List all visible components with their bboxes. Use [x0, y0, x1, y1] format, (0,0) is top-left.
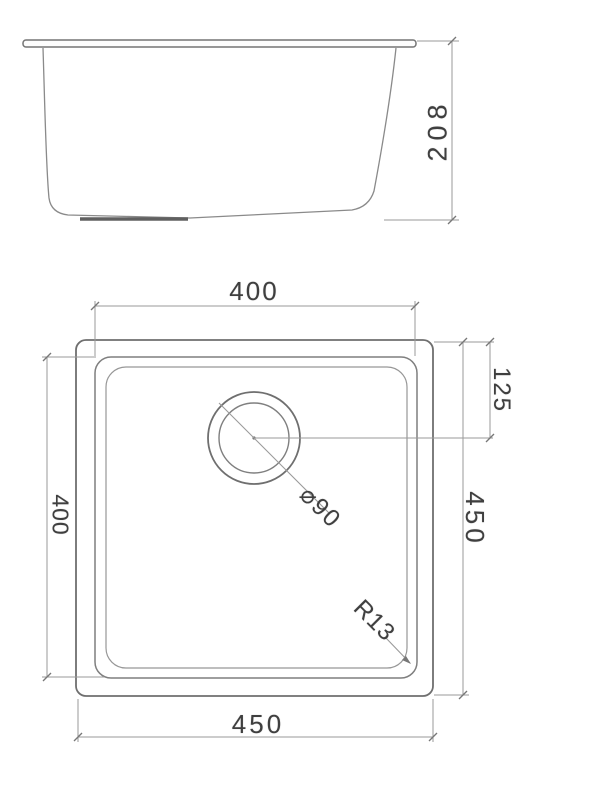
plan-view: [42, 301, 494, 742]
dim-drain-offset: [254, 338, 494, 442]
leader-arrowhead: [402, 656, 411, 664]
elevation-view: [23, 37, 459, 224]
sink-body-profile: [43, 48, 396, 218]
dim-label-inner-width: 400: [229, 278, 278, 304]
dim-label-drain-offset: 125: [489, 367, 513, 413]
dim-label-outer-width: 450: [232, 711, 284, 737]
technical-drawing-canvas: 208 400 400 450 125 450 ⌀90 R13: [0, 0, 605, 800]
dim-inner-width: [91, 301, 419, 356]
dim-label-elevation-height: 208: [425, 98, 452, 161]
sink-rim-profile: [23, 40, 416, 47]
dim-label-outer-height: 450: [462, 491, 488, 546]
dim-label-inner-height: 400: [49, 494, 72, 535]
